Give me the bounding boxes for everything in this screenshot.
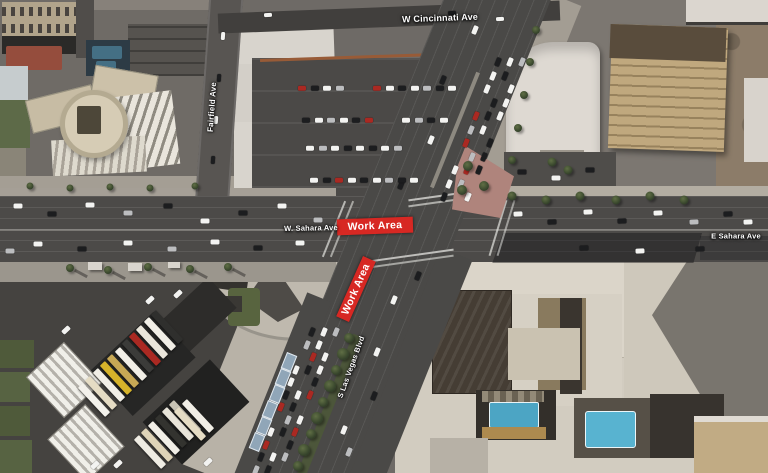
vehicle [279, 427, 287, 437]
vehicle [296, 414, 304, 424]
vehicle [397, 178, 405, 183]
tree [107, 184, 114, 191]
vehicle [314, 339, 322, 349]
vehicle [284, 414, 292, 424]
vehicle [347, 178, 355, 183]
vehicle [318, 146, 326, 151]
vehicle [254, 246, 263, 251]
vehicle [289, 402, 297, 412]
vehicle [221, 32, 226, 40]
tree [457, 185, 467, 195]
tree [144, 263, 152, 271]
vehicle [302, 339, 310, 349]
vehicle [335, 178, 343, 183]
vehicle [252, 464, 260, 473]
vehicle [327, 118, 335, 123]
tree [508, 156, 516, 164]
vehicle [398, 86, 406, 91]
vehicle [489, 70, 497, 80]
vehicle [217, 74, 222, 82]
vehicle [579, 245, 588, 250]
vehicle [352, 118, 360, 123]
vehicle [78, 247, 87, 252]
vehicle [507, 84, 515, 94]
tree [27, 183, 34, 190]
vehicle [360, 178, 368, 183]
tree-shadow [74, 269, 88, 278]
vehicle [423, 86, 431, 91]
vehicle [451, 165, 459, 175]
vehicle [490, 97, 498, 107]
vehicle [6, 249, 15, 254]
vehicle [203, 457, 213, 467]
vehicle [113, 459, 123, 469]
tree [526, 58, 534, 66]
vehicle [291, 427, 299, 437]
vehicle [304, 364, 312, 374]
vehicle [583, 209, 592, 214]
tree [532, 26, 540, 34]
vehicle [302, 118, 310, 123]
vehicle [373, 86, 381, 91]
vehicle [393, 146, 401, 151]
vehicle [479, 124, 487, 134]
tree-shadow [152, 268, 166, 277]
vehicle [385, 178, 393, 183]
tree [564, 166, 573, 175]
vehicle [368, 146, 376, 151]
tree [463, 161, 473, 171]
vehicle [410, 86, 418, 91]
vehicle [381, 146, 389, 151]
vehicle [281, 452, 289, 462]
tree-shadow [112, 271, 126, 280]
vehicle [586, 168, 595, 173]
tree [337, 348, 349, 360]
vehicle [695, 246, 704, 251]
vehicle [321, 352, 329, 362]
vehicle [306, 146, 314, 151]
vehicle [323, 86, 331, 91]
vehicle [294, 389, 302, 399]
vehicle [308, 327, 316, 337]
vehicle [390, 295, 398, 305]
work-area-banner-horizontal: Work Area [337, 217, 414, 236]
vehicle [506, 57, 514, 67]
vehicle [124, 211, 133, 216]
tree [306, 429, 316, 439]
vehicle [653, 210, 662, 215]
vehicle [427, 135, 435, 145]
vehicle [356, 146, 364, 151]
tree-shadow [232, 268, 246, 277]
vehicle [513, 211, 522, 216]
vehicle [461, 138, 469, 148]
vehicle [414, 271, 422, 281]
tree [479, 181, 489, 191]
vehicle [494, 57, 502, 67]
vehicle [322, 178, 330, 183]
vehicle [34, 242, 43, 247]
vehicle [402, 118, 410, 123]
vehicle [296, 241, 305, 246]
vehicle [286, 439, 294, 449]
vehicle [309, 352, 317, 362]
tree [520, 91, 528, 99]
vehicle [310, 178, 318, 183]
vehicle [483, 84, 491, 94]
vehicle [201, 219, 210, 224]
vehicle [211, 156, 216, 164]
vehicle [689, 219, 698, 224]
vehicle [723, 211, 732, 216]
vehicle [331, 146, 339, 151]
vehicle [298, 86, 306, 91]
vehicle [124, 241, 133, 246]
tree [224, 263, 232, 271]
vehicle [211, 240, 220, 245]
vehicle [14, 204, 23, 209]
vehicle [439, 118, 447, 123]
vehicle [472, 111, 480, 121]
tree [646, 192, 655, 201]
vehicle [90, 460, 100, 470]
vehicle [345, 447, 353, 457]
vehicle [314, 218, 323, 223]
tree [104, 266, 112, 274]
vehicle [617, 218, 626, 223]
vehicle [496, 111, 504, 121]
work-area-top-label: Work Area [347, 219, 402, 233]
tree [293, 461, 303, 471]
vehicle [316, 364, 324, 374]
vehicle [435, 86, 443, 91]
tree [331, 365, 341, 375]
tree-shadow [194, 270, 208, 279]
vehicle [173, 289, 183, 299]
vehicle [311, 377, 319, 387]
vehicle [269, 452, 277, 462]
satellite-map[interactable]: Work Area Work Area W Cincinnati Ave Fai… [0, 0, 768, 473]
vehicle [448, 86, 456, 91]
vehicle [496, 17, 504, 21]
vehicle [480, 151, 488, 161]
vehicle [552, 176, 561, 181]
vehicle [475, 165, 483, 175]
vehicle [292, 364, 300, 374]
vehicle [339, 118, 347, 123]
vehicle [86, 203, 95, 208]
vehicle [485, 138, 493, 148]
tree [680, 196, 689, 205]
vehicle [501, 70, 509, 80]
tree [298, 444, 310, 456]
map-decor-layer [0, 0, 768, 473]
vehicle [410, 178, 418, 183]
tree [192, 183, 199, 190]
tree [311, 412, 323, 424]
tree [66, 264, 74, 272]
vehicle [332, 327, 340, 337]
vehicle [262, 439, 270, 449]
street-label-sahara-east: E Sahara Ave [711, 232, 761, 241]
vehicle [306, 389, 314, 399]
vehicle [314, 118, 322, 123]
vehicle [48, 212, 57, 217]
vehicle [439, 75, 447, 85]
vehicle [370, 391, 378, 401]
vehicle [440, 192, 448, 202]
vehicle [445, 178, 453, 188]
vehicle [364, 118, 372, 123]
vehicle [164, 204, 173, 209]
vehicle [239, 211, 248, 216]
vehicle [310, 86, 318, 91]
tree [508, 192, 517, 201]
tree [612, 196, 621, 205]
tree [147, 185, 154, 192]
tree [576, 192, 585, 201]
vehicle [518, 170, 527, 175]
vehicle [471, 25, 479, 35]
tree [318, 397, 328, 407]
vehicle [343, 146, 351, 151]
tree [548, 158, 557, 167]
street-label-sahara-west: W. Sahara Ave [284, 223, 338, 233]
vehicle [468, 151, 476, 161]
vehicle [335, 86, 343, 91]
vehicle [145, 295, 155, 305]
vehicle [168, 247, 177, 252]
vehicle [278, 204, 287, 209]
vehicle [414, 118, 422, 123]
vehicle [61, 325, 71, 335]
vehicle [484, 111, 492, 121]
tree [186, 265, 194, 273]
vehicle [257, 452, 265, 462]
vehicle [502, 97, 510, 107]
tree [324, 380, 336, 392]
vehicle [547, 219, 556, 224]
vehicle [385, 86, 393, 91]
tree [344, 333, 354, 343]
vehicle [320, 327, 328, 337]
vehicle [340, 425, 348, 435]
vehicle [467, 124, 475, 134]
vehicle [372, 178, 380, 183]
vehicle [264, 13, 272, 17]
tree [67, 185, 74, 192]
vehicle [635, 248, 644, 253]
vehicle [518, 57, 526, 67]
tree [514, 124, 522, 132]
vehicle [373, 347, 381, 357]
vehicle [264, 464, 272, 473]
tree [542, 196, 551, 205]
vehicle [427, 118, 435, 123]
vehicle [743, 219, 752, 224]
